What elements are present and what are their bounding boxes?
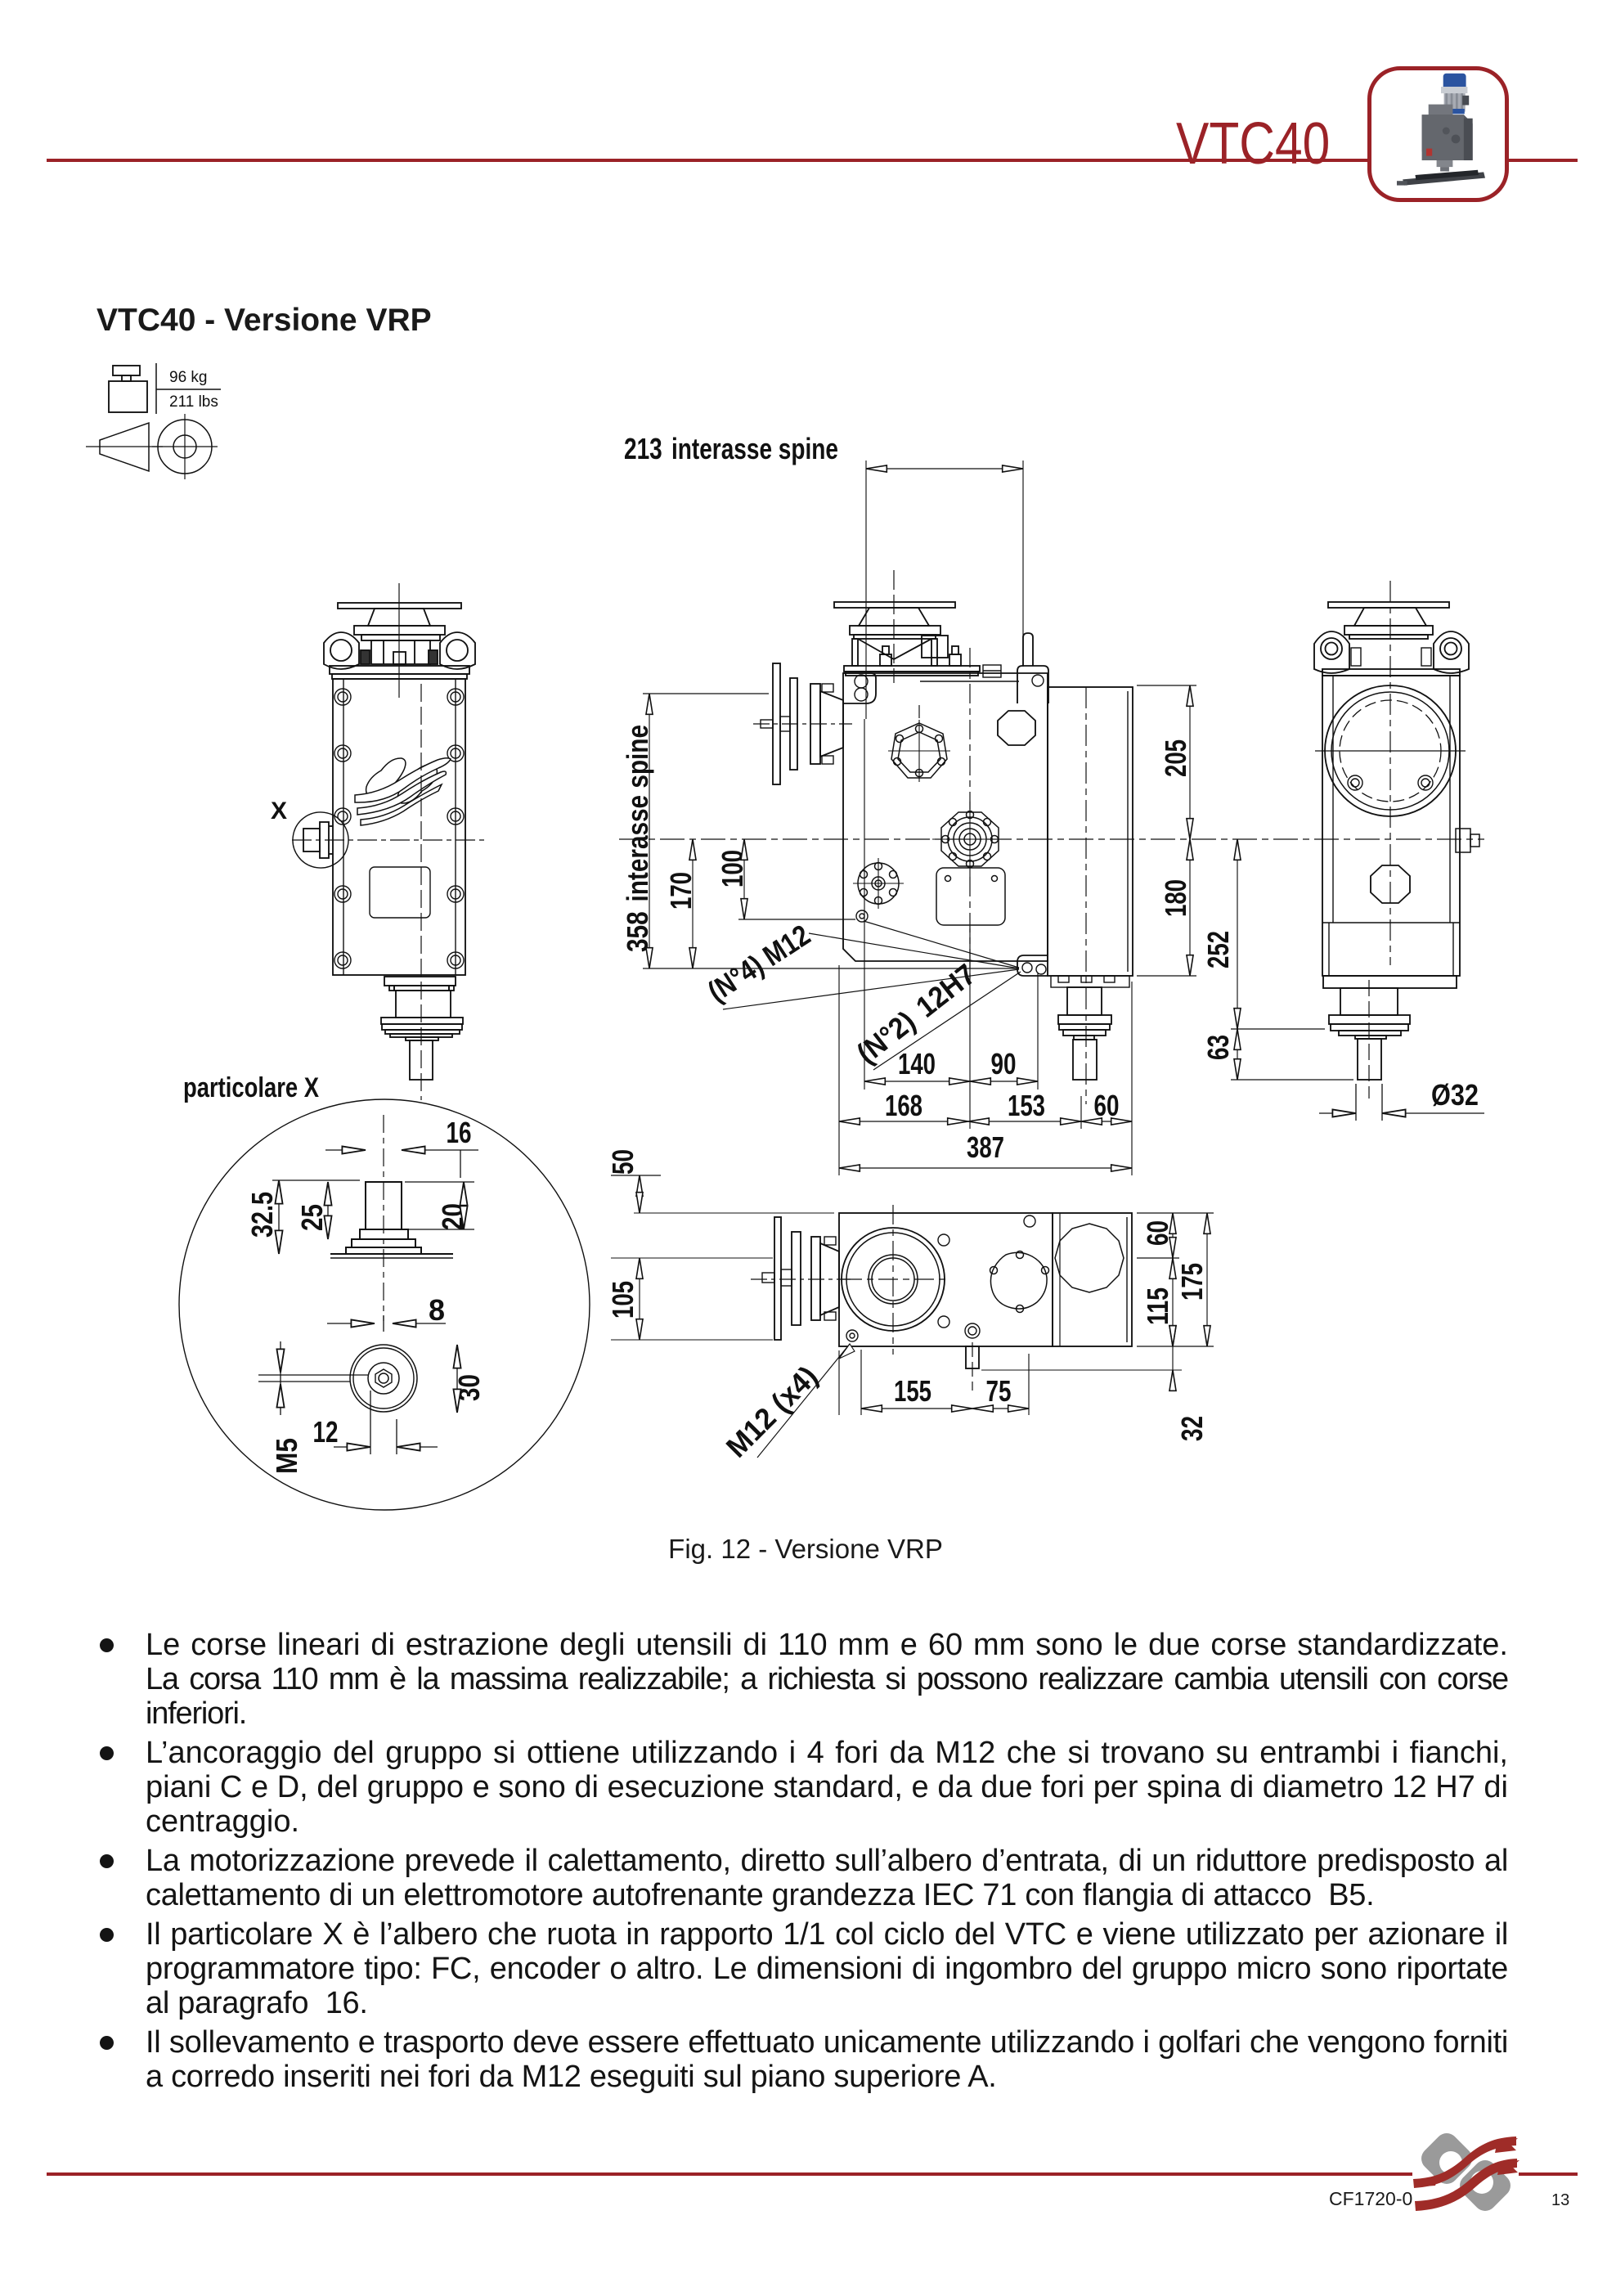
svg-text:180: 180 — [1159, 879, 1192, 917]
svg-text:140: 140 — [898, 1047, 936, 1081]
svg-text:M5: M5 — [270, 1438, 303, 1474]
svg-text:252: 252 — [1201, 931, 1235, 968]
svg-text:211 lbs: 211 lbs — [169, 393, 218, 411]
svg-text:387: 387 — [967, 1130, 1004, 1164]
svg-text:205: 205 — [1159, 739, 1192, 777]
svg-text:M12 (x4): M12 (x4) — [720, 1359, 824, 1464]
svg-text:213 interasse spine: 213 interasse spine — [624, 432, 838, 465]
svg-text:Ø32: Ø32 — [1431, 1078, 1479, 1112]
svg-text:32: 32 — [1175, 1416, 1209, 1441]
svg-text:32.5: 32.5 — [245, 1192, 279, 1238]
svg-text:105: 105 — [606, 1281, 640, 1319]
svg-text:60: 60 — [1141, 1220, 1174, 1246]
svg-text:(N°4) M12: (N°4) M12 — [702, 918, 816, 1009]
svg-text:20: 20 — [436, 1203, 469, 1230]
svg-text:50: 50 — [606, 1149, 640, 1175]
svg-text:90: 90 — [991, 1047, 1017, 1081]
svg-text:155: 155 — [894, 1374, 931, 1408]
svg-text:60: 60 — [1094, 1089, 1120, 1122]
svg-text:12: 12 — [313, 1415, 339, 1449]
svg-text:175: 175 — [1175, 1263, 1209, 1301]
svg-text:153: 153 — [1008, 1089, 1045, 1122]
svg-text:16: 16 — [447, 1116, 472, 1149]
svg-text:168: 168 — [885, 1089, 922, 1122]
svg-text:25: 25 — [295, 1204, 329, 1231]
svg-text:X: X — [271, 798, 287, 824]
svg-text:63: 63 — [1201, 1035, 1235, 1060]
svg-text:96 kg: 96 kg — [169, 369, 207, 386]
svg-text:115: 115 — [1141, 1287, 1174, 1325]
svg-text:particolare X: particolare X — [183, 1072, 319, 1103]
svg-text:75: 75 — [986, 1374, 1012, 1408]
svg-text:8: 8 — [429, 1293, 445, 1327]
